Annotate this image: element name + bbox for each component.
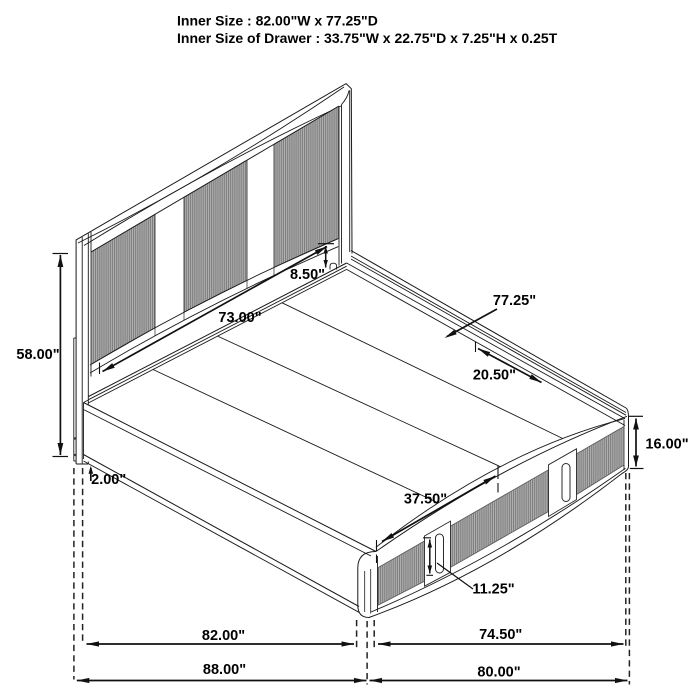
svg-text:11.25": 11.25" bbox=[472, 582, 514, 598]
svg-text:58.00": 58.00" bbox=[16, 347, 59, 363]
svg-text:73.00": 73.00" bbox=[218, 310, 261, 326]
svg-text:82.00": 82.00" bbox=[202, 628, 245, 644]
svg-text:74.50": 74.50" bbox=[479, 627, 522, 643]
svg-text:37.50": 37.50" bbox=[404, 492, 447, 508]
svg-text:Inner Size : 82.00"W x 77.25"D: Inner Size : 82.00"W x 77.25"D bbox=[177, 13, 378, 29]
svg-text:16.00": 16.00" bbox=[645, 437, 688, 453]
svg-text:88.00": 88.00" bbox=[203, 662, 246, 678]
svg-text:Inner Size of Drawer : 33.75"W: Inner Size of Drawer : 33.75"W x 22.75"D… bbox=[177, 30, 558, 46]
svg-text:77.25": 77.25" bbox=[493, 293, 536, 309]
svg-text:80.00": 80.00" bbox=[477, 665, 520, 681]
svg-text:2.00": 2.00" bbox=[91, 472, 126, 488]
svg-text:8.50": 8.50" bbox=[290, 267, 325, 283]
svg-text:20.50": 20.50" bbox=[473, 368, 516, 384]
